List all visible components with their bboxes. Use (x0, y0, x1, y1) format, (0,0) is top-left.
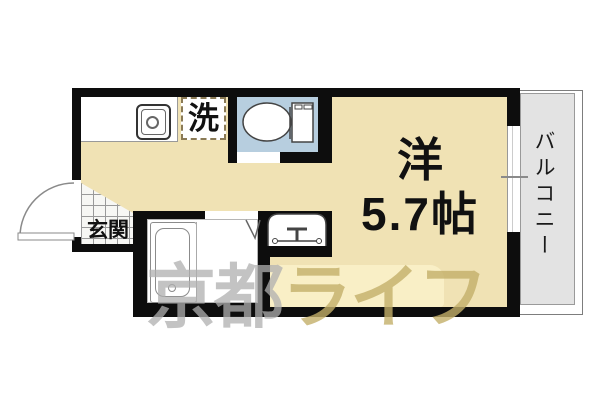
toilet-icon (240, 99, 326, 147)
toilet-door-opening (237, 152, 280, 163)
main-room-type: 洋 (320, 134, 520, 186)
floorplan: バルコニー 洗 玄関 (0, 0, 600, 400)
wall-entrance-bottom (72, 244, 135, 252)
entrance-door-swing-arc (20, 183, 74, 237)
entrance-door-leaf (18, 233, 74, 240)
main-room-size: 5.7帖 (320, 186, 520, 242)
bathroom-door-opening (205, 211, 258, 219)
laundry-label: 洗 (188, 103, 219, 134)
wall-left (72, 88, 81, 180)
wall-top (72, 88, 520, 97)
washing-machine-space: 洗 (181, 97, 226, 140)
watermark: 京都ライフ (146, 262, 486, 332)
wash-basin-icon (266, 212, 328, 248)
watermark-part1: 京都 (146, 258, 282, 336)
watermark-part2: ライフ (282, 258, 486, 336)
main-room-label: 洋 5.7帖 (320, 134, 520, 242)
outside-area (72, 252, 135, 322)
kitchen-sink-drain-icon (146, 116, 159, 129)
balcony-label: バルコニー (528, 130, 558, 280)
entrance-label: 玄関 (82, 214, 134, 244)
